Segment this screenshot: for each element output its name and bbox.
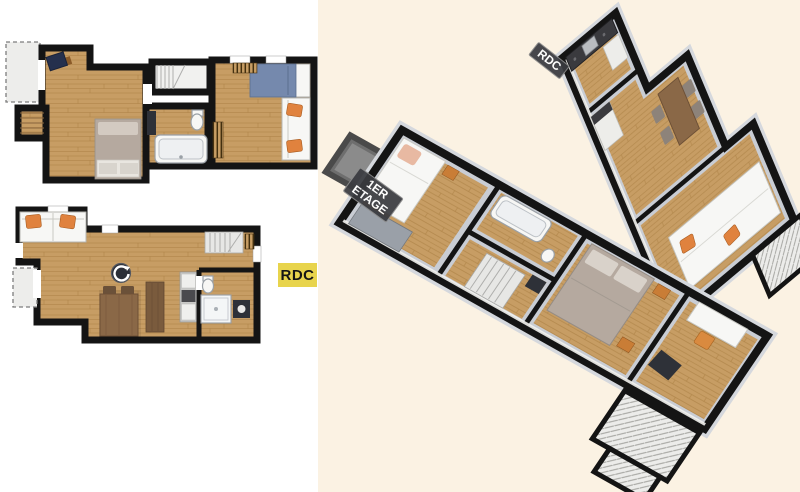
balcony-2d — [6, 42, 40, 102]
window-gap — [15, 243, 23, 258]
bathroom-vanity — [233, 300, 250, 318]
floorplan-viewer: RDC RDC 1ER ETAGE — [0, 0, 800, 492]
balcony-door-gap — [38, 60, 45, 90]
dining-table — [99, 286, 141, 340]
radiator — [213, 122, 223, 158]
radiator — [245, 234, 254, 249]
window — [266, 56, 286, 63]
shower — [201, 295, 231, 323]
floorplan-2d-first-floor — [6, 42, 314, 180]
window — [102, 225, 118, 233]
toilet — [203, 276, 214, 293]
ground-floor-label-2d: RDC — [278, 263, 317, 287]
sofa-living — [20, 212, 86, 242]
rotate-360-icon[interactable] — [112, 264, 131, 283]
bathroom-vanity — [147, 111, 156, 135]
bathtub — [155, 135, 207, 163]
single-bed-blue — [250, 64, 310, 97]
radiator — [233, 63, 257, 73]
stairs-ground — [205, 232, 243, 253]
floorplans-canvas — [0, 0, 800, 492]
window — [230, 56, 250, 63]
double-bed — [95, 119, 141, 179]
bathroom-door-gap — [196, 276, 203, 290]
kitchen-counter — [146, 282, 164, 332]
floorplan-2d-ground-floor — [13, 206, 261, 340]
bathroom-door-gap — [143, 84, 152, 104]
kitchen-appliances — [180, 272, 197, 322]
balcony-door-gap — [33, 270, 41, 298]
sofa-right — [282, 98, 310, 160]
toilet — [191, 110, 203, 130]
